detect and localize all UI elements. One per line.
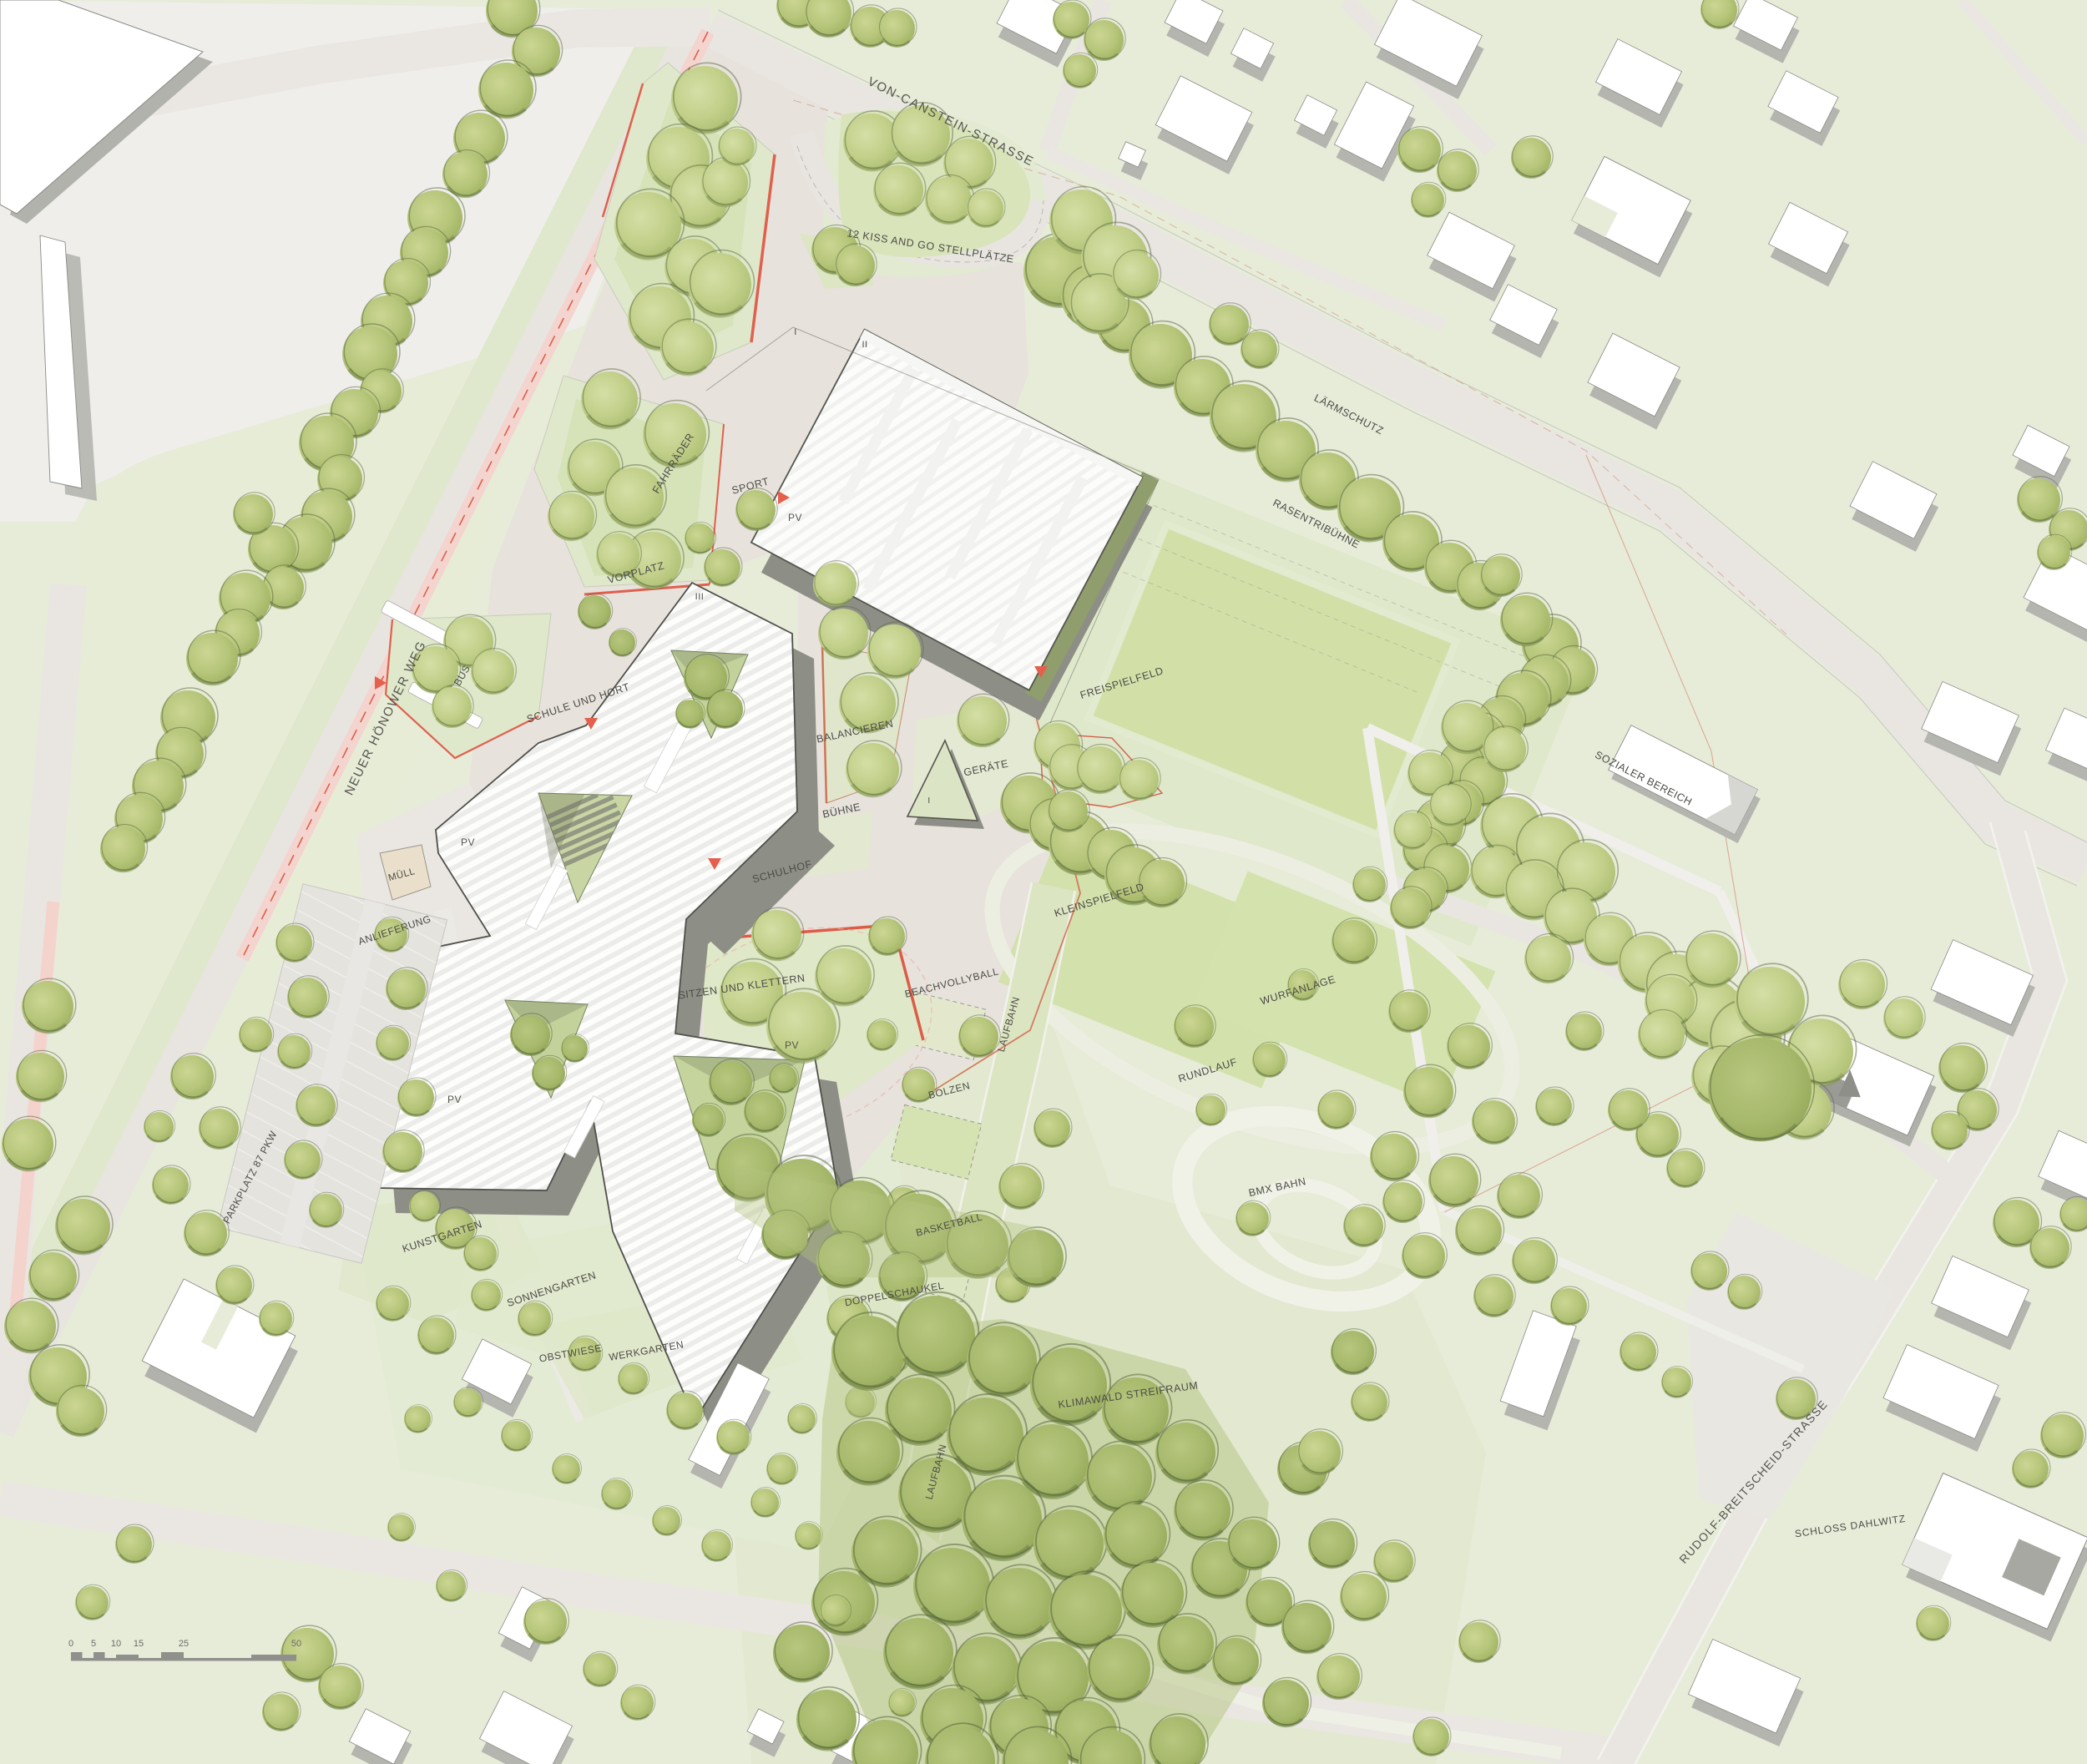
svg-text:PV: PV <box>461 837 475 848</box>
svg-text:I: I <box>794 327 797 337</box>
svg-text:0: 0 <box>68 1639 73 1649</box>
svg-text:50: 50 <box>291 1639 301 1649</box>
svg-text:II: II <box>862 340 867 350</box>
svg-text:I: I <box>927 796 930 806</box>
svg-text:III: III <box>695 592 705 602</box>
svg-text:PV: PV <box>785 1039 799 1051</box>
svg-text:PV: PV <box>447 1094 462 1105</box>
svg-text:15: 15 <box>134 1639 144 1649</box>
svg-text:10: 10 <box>111 1639 121 1649</box>
svg-text:5: 5 <box>91 1639 96 1649</box>
svg-text:25: 25 <box>179 1639 189 1649</box>
svg-text:PV: PV <box>788 512 802 523</box>
